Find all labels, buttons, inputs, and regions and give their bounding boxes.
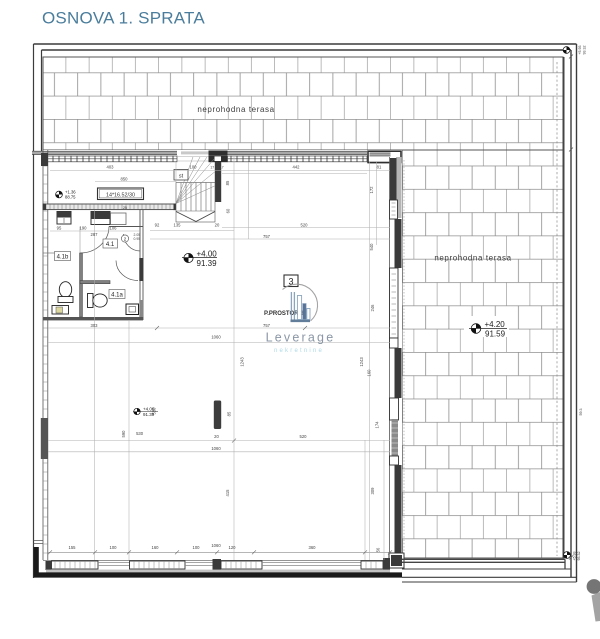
svg-text:1060: 1060	[211, 334, 221, 339]
svg-text:92: 92	[155, 222, 160, 227]
svg-text:360: 360	[309, 545, 317, 550]
svg-text:91.59: 91.59	[485, 329, 506, 338]
svg-text:+5.93: +5.93	[578, 45, 582, 54]
svg-text:14*16.52/30: 14*16.52/30	[106, 192, 135, 198]
svg-text:540: 540	[369, 243, 374, 251]
svg-text:520: 520	[301, 222, 309, 227]
svg-text:+5.93: +5.93	[573, 551, 577, 560]
svg-text:160: 160	[152, 545, 160, 550]
svg-text:88.75: 88.75	[65, 195, 76, 200]
svg-text:1243: 1243	[359, 357, 364, 367]
svg-text:850: 850	[121, 176, 129, 181]
svg-text:590: 590	[121, 430, 126, 438]
svg-text:Leverage: Leverage	[266, 331, 336, 345]
svg-text:neprohodna terasa: neprohodna terasa	[197, 105, 274, 114]
svg-text:530: 530	[136, 431, 144, 436]
svg-text:287: 287	[91, 232, 99, 237]
svg-text:85: 85	[225, 180, 230, 185]
svg-text:1243: 1243	[239, 357, 244, 367]
svg-text:+4.00: +4.00	[197, 250, 218, 259]
svg-text:303: 303	[91, 323, 99, 328]
svg-text:25: 25	[123, 206, 127, 210]
svg-text:442: 442	[293, 165, 301, 170]
svg-text:106: 106	[110, 226, 118, 231]
svg-text:0.95: 0.95	[134, 237, 141, 241]
svg-text:93.32: 93.32	[577, 552, 581, 561]
svg-text:4.1b: 4.1b	[57, 255, 69, 261]
svg-text:160: 160	[366, 369, 371, 377]
svg-text:95: 95	[57, 226, 62, 231]
svg-text:91.39: 91.39	[197, 259, 218, 268]
svg-text:1060: 1060	[211, 446, 221, 451]
svg-text:1060: 1060	[211, 543, 221, 548]
svg-text:60: 60	[226, 208, 231, 213]
svg-text:174: 174	[374, 421, 379, 429]
svg-text:neprohodna terasa: neprohodna terasa	[434, 254, 511, 263]
svg-text:757: 757	[263, 234, 271, 239]
svg-text:246: 246	[370, 304, 375, 312]
svg-text:4.1: 4.1	[106, 242, 115, 248]
svg-text:56: 56	[375, 547, 380, 552]
svg-text:120: 120	[229, 545, 237, 550]
svg-text:100: 100	[190, 165, 198, 170]
svg-text:309: 309	[370, 487, 375, 495]
svg-text:757: 757	[263, 323, 271, 328]
svg-text:520: 520	[300, 434, 308, 439]
svg-text:20: 20	[214, 434, 219, 439]
svg-text:403: 403	[107, 165, 115, 170]
svg-text:59.3: 59.3	[579, 409, 583, 416]
svg-text:135: 135	[174, 222, 182, 227]
svg-text:100: 100	[110, 545, 118, 550]
svg-text:190: 190	[80, 226, 88, 231]
svg-text:91.39: 91.39	[143, 412, 155, 417]
svg-text:+4.20: +4.20	[485, 320, 506, 329]
svg-text:100: 100	[193, 545, 201, 550]
svg-text:172: 172	[369, 186, 374, 194]
svg-text:4.1a: 4.1a	[111, 293, 123, 299]
svg-text:+4.00: +4.00	[143, 407, 155, 412]
svg-text:155: 155	[69, 545, 77, 550]
svg-text:17 20 17: 17 20 17	[210, 166, 223, 170]
svg-text:93.32: 93.32	[583, 46, 587, 55]
svg-text:85: 85	[226, 411, 231, 416]
svg-text:415: 415	[225, 489, 230, 497]
svg-text:OSNOVA 1. SPRATA: OSNOVA 1. SPRATA	[42, 9, 205, 28]
svg-text:nekretnine: nekretnine	[274, 348, 324, 354]
svg-text:81: 81	[377, 165, 382, 170]
svg-text:20: 20	[215, 222, 220, 227]
svg-text:st: st	[179, 174, 184, 180]
